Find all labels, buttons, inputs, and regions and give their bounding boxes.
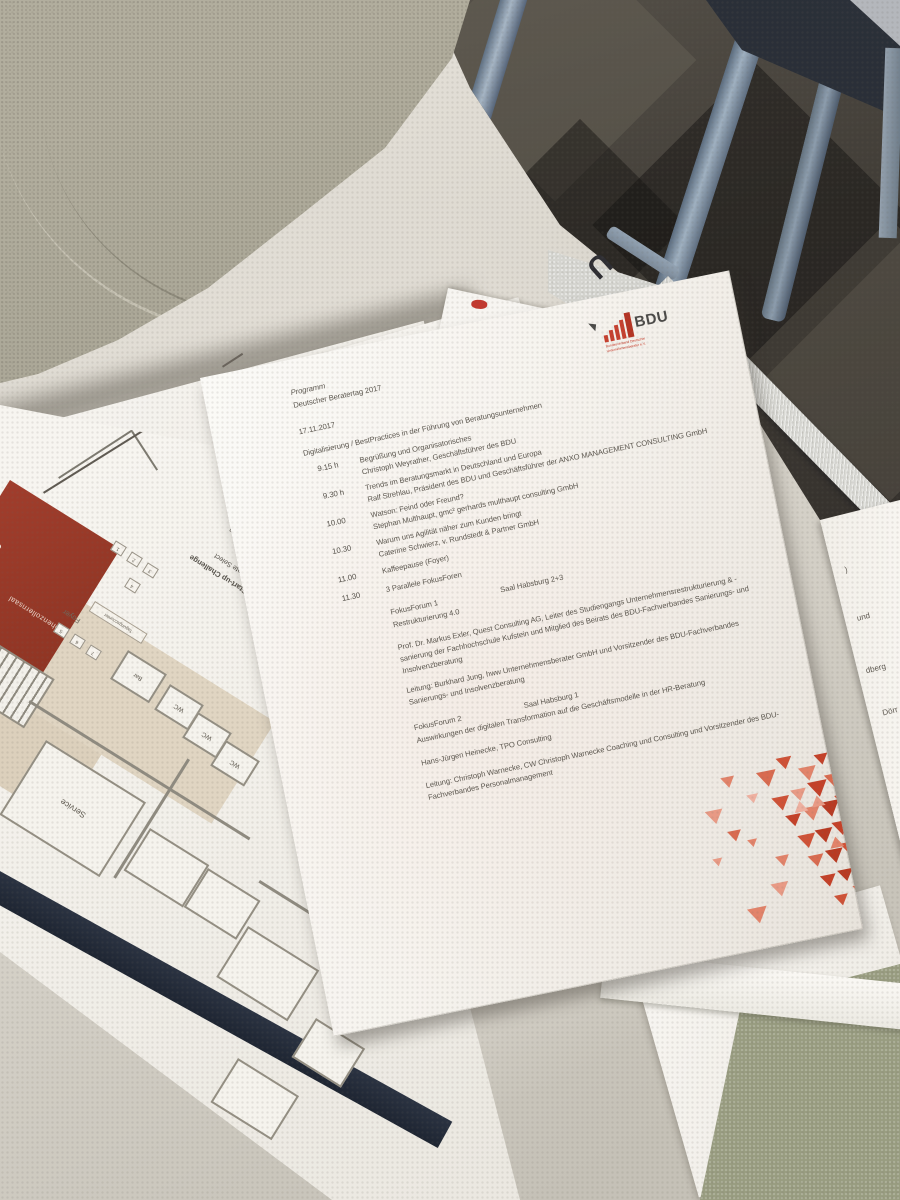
session-time: 9.30 h bbox=[322, 488, 345, 501]
logo-bar-icon bbox=[609, 330, 615, 342]
triangle-icon bbox=[746, 793, 760, 804]
triangle-icon bbox=[814, 752, 830, 766]
stand-number: 5 bbox=[59, 627, 65, 634]
logo-triangle-icon bbox=[587, 323, 596, 331]
plan-wc-label: WC bbox=[201, 729, 214, 741]
red-logo-mark bbox=[471, 299, 488, 309]
triangle-icon bbox=[747, 906, 770, 926]
session-time: 11.00 bbox=[337, 572, 357, 585]
triangle-icon bbox=[771, 795, 791, 812]
triangle-icon bbox=[775, 854, 791, 868]
stand-number: 1 bbox=[116, 545, 122, 552]
fragment-text: dberg bbox=[865, 662, 887, 676]
logo-bar-icon bbox=[604, 335, 609, 343]
triangle-icon bbox=[834, 793, 852, 808]
triangle-icon bbox=[798, 765, 818, 782]
triangle-icon bbox=[785, 813, 803, 828]
plan-bar-label: Bar bbox=[133, 672, 144, 682]
session-time: 11.30 bbox=[341, 591, 361, 604]
photo-scene: Hohenzollernsaal P Foyer Tagungscounter … bbox=[0, 0, 900, 1200]
triangle-icon bbox=[756, 769, 779, 789]
plan-wc-label: WC bbox=[229, 757, 242, 769]
fragment-text: Dörr bbox=[881, 705, 898, 717]
forum-room: Saal Habsburg 2+3 bbox=[499, 573, 564, 595]
triangle-icon bbox=[820, 873, 838, 888]
logo-wordmark: BDU bbox=[633, 308, 670, 331]
map-frame-line bbox=[132, 431, 158, 470]
triangle-icon bbox=[727, 829, 743, 843]
plan-stand: 2 bbox=[126, 551, 143, 567]
triangle-icon bbox=[834, 893, 850, 907]
session-time: 10.30 bbox=[331, 543, 352, 556]
program-date: 17.11.2017 bbox=[298, 420, 336, 436]
triangle-icon bbox=[747, 838, 758, 848]
triangle-icon bbox=[837, 868, 855, 883]
session-time: 10.00 bbox=[326, 516, 347, 529]
stand-number: 4 bbox=[130, 582, 136, 589]
triangle-icon bbox=[712, 858, 723, 868]
plan-hall-dot bbox=[0, 543, 2, 550]
stand-number: 6 bbox=[75, 638, 81, 645]
triangle-icon bbox=[720, 776, 736, 790]
session-time: 9.15 h bbox=[317, 460, 340, 473]
stand-number: 2 bbox=[132, 556, 138, 563]
stand-number: 3 bbox=[148, 567, 154, 574]
session-topic: Kaffeepause (Foyer) bbox=[381, 553, 449, 575]
triangle-icon bbox=[824, 772, 844, 789]
fragment-text: ) bbox=[844, 565, 849, 574]
triangle-icon bbox=[808, 853, 826, 868]
stand-number: 7 bbox=[91, 649, 97, 656]
triangle-icon bbox=[705, 809, 725, 826]
fragment-text: und bbox=[856, 611, 871, 623]
triangle-icon bbox=[775, 756, 793, 771]
plan-room bbox=[210, 1058, 299, 1140]
plan-stand: 3 bbox=[142, 562, 159, 578]
plan-wc-label: WC bbox=[173, 701, 186, 713]
plan-service-label: Service bbox=[58, 797, 87, 821]
triangle-icon bbox=[770, 881, 790, 898]
session-topic: 3 Parallele FokusForen bbox=[385, 570, 462, 594]
plan-stand: 4 bbox=[124, 577, 141, 593]
bdu-logo: BDU Bundesverband Deutscher Unternehmens… bbox=[585, 294, 702, 363]
map-frame-line bbox=[58, 430, 133, 479]
